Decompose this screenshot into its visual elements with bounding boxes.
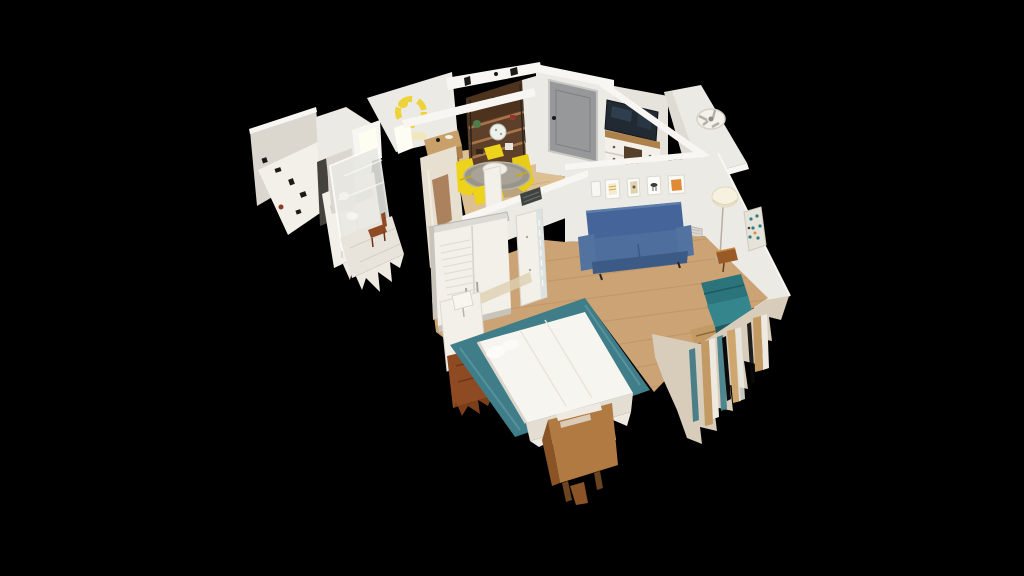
mirror-door [516, 209, 547, 306]
towel [339, 192, 349, 200]
toilet [346, 212, 358, 220]
red-kettle [279, 205, 284, 210]
plant [473, 120, 481, 128]
globe [490, 124, 506, 140]
door-knob [552, 116, 556, 120]
dollhouse-model[interactable] [0, 0, 1024, 576]
white-bin [505, 143, 513, 150]
viewer-canvas[interactable] [0, 0, 1024, 576]
entry-door [549, 80, 597, 162]
ceiling-fan [697, 109, 725, 129]
